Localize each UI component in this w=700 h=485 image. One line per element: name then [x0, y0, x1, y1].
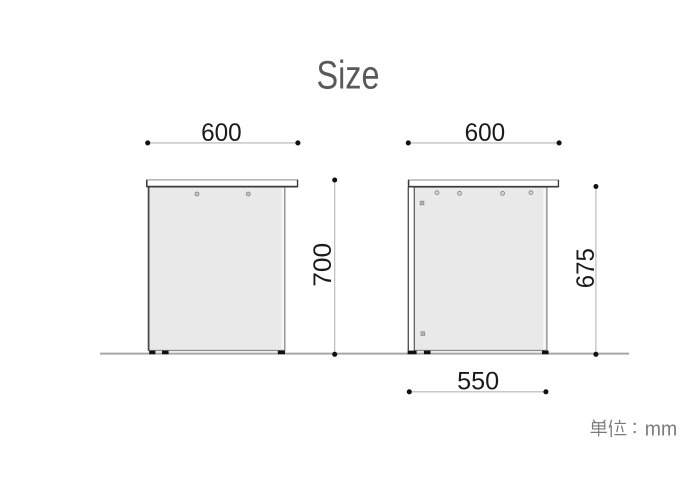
svg-text:mm: mm: [645, 417, 677, 440]
svg-text:550: 550: [457, 367, 499, 395]
svg-text:Size: Size: [317, 54, 380, 98]
svg-text:600: 600: [201, 119, 242, 147]
svg-text:700: 700: [309, 243, 337, 287]
svg-text:675: 675: [572, 248, 600, 288]
svg-text:600: 600: [465, 119, 506, 147]
